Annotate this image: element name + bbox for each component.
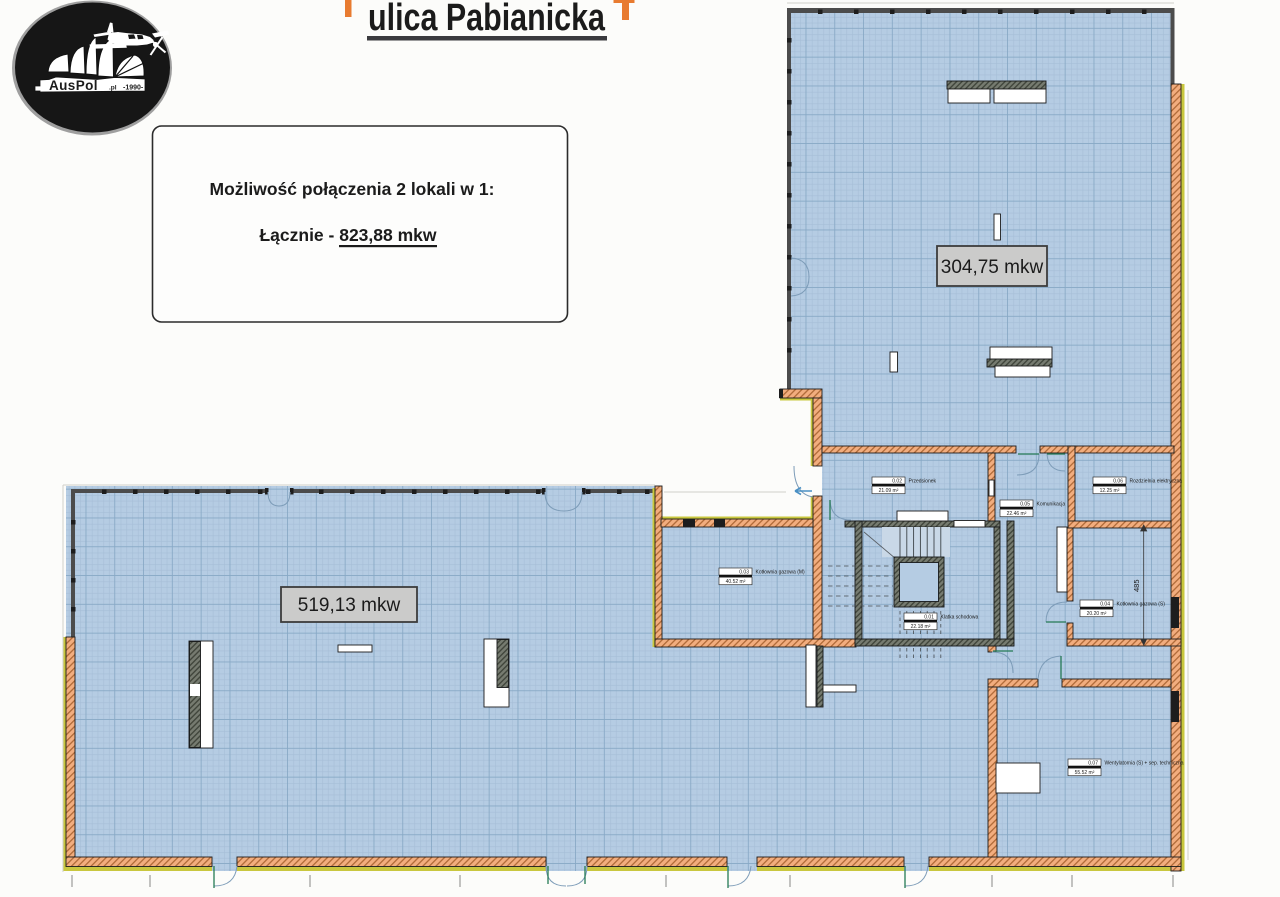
svg-text:.pl: .pl xyxy=(109,85,117,92)
svg-text:Rozdzielnia elektryczna: Rozdzielnia elektryczna xyxy=(1130,479,1183,485)
svg-text:AusPol: AusPol xyxy=(49,78,98,93)
svg-text:Łącznie - 823,88 mkw: Łącznie - 823,88 mkw xyxy=(259,225,436,245)
svg-text:Komunikacja: Komunikacja xyxy=(1037,502,1066,508)
svg-text:Przedsionek: Przedsionek xyxy=(909,479,937,485)
svg-text:0.03: 0.03 xyxy=(739,570,749,576)
svg-text:12.25 m²: 12.25 m² xyxy=(1100,488,1120,494)
svg-text:304,75 mkw: 304,75 mkw xyxy=(941,257,1044,278)
svg-text:519,13 mkw: 519,13 mkw xyxy=(298,595,401,616)
svg-text:0.02: 0.02 xyxy=(892,479,902,485)
svg-text:21.09 m²: 21.09 m² xyxy=(879,488,899,494)
svg-text:22.46 m²: 22.46 m² xyxy=(1007,511,1027,517)
svg-text:22.18 m²: 22.18 m² xyxy=(911,624,931,630)
svg-text:40.52 m²: 40.52 m² xyxy=(726,579,746,585)
svg-text:0.07: 0.07 xyxy=(1088,761,1098,767)
svg-text:0.04: 0.04 xyxy=(1100,602,1110,608)
svg-text:55.52 m²: 55.52 m² xyxy=(1075,770,1095,776)
svg-text:-1990-: -1990- xyxy=(123,85,144,92)
svg-text:Kotłownia gazowa (M): Kotłownia gazowa (M) xyxy=(756,570,806,576)
svg-text:0.06: 0.06 xyxy=(1113,479,1123,485)
svg-text:Wentylatornia (S) + sep. techn: Wentylatornia (S) + sep. techniczna xyxy=(1105,761,1184,767)
svg-text:20.20 m²: 20.20 m² xyxy=(1087,611,1107,617)
svg-text:Możliwość połączenia 2 lokali: Możliwość połączenia 2 lokali w 1: xyxy=(210,179,495,199)
svg-text:ulica Pabianicka: ulica Pabianicka xyxy=(368,0,606,39)
svg-text:485: 485 xyxy=(1132,579,1141,592)
svg-text:0.05: 0.05 xyxy=(1020,502,1030,508)
svg-text:Klatka schodowa: Klatka schodowa xyxy=(941,615,979,621)
svg-text:Kotłownia gazowa (S): Kotłownia gazowa (S) xyxy=(1117,602,1166,608)
svg-text:0.01: 0.01 xyxy=(924,615,934,621)
